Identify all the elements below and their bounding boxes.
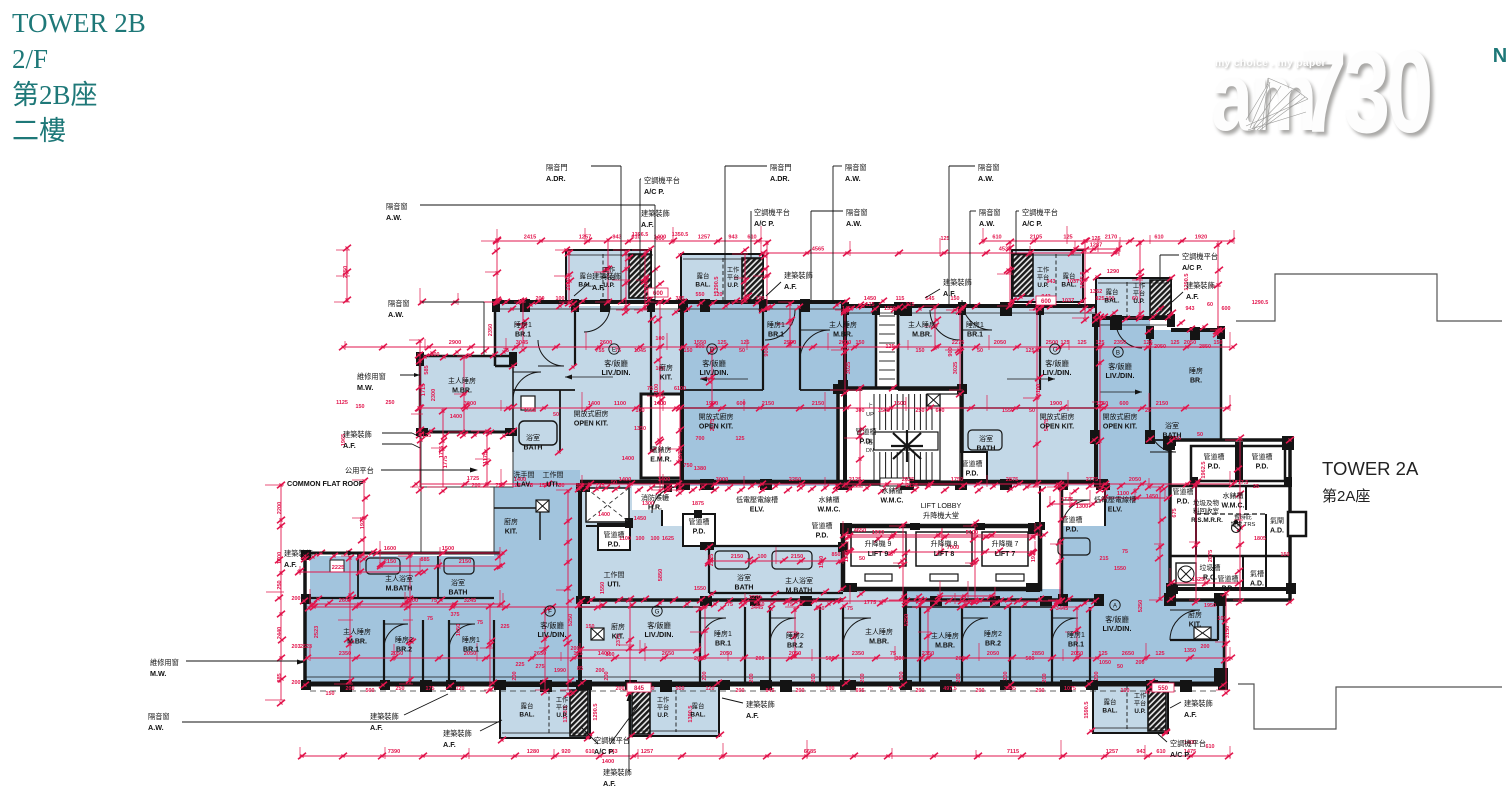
svg-text:二樓: 二樓 (12, 116, 66, 146)
svg-text:500: 500 (366, 688, 375, 694)
svg-text:廚房: 廚房 (1188, 610, 1202, 619)
svg-text:215: 215 (1100, 556, 1109, 562)
svg-text:6100: 6100 (1036, 384, 1042, 396)
svg-text:平台: 平台 (727, 274, 739, 282)
svg-text:客/飯廳: 客/飯廳 (540, 621, 564, 630)
svg-text:1550: 1550 (884, 306, 896, 312)
svg-text:920: 920 (561, 749, 570, 755)
svg-text:隔音窗: 隔音窗 (148, 712, 170, 721)
svg-text:610: 610 (1156, 749, 1165, 755)
svg-text:200: 200 (702, 671, 708, 680)
svg-text:睡房1: 睡房1 (462, 635, 480, 644)
svg-text:200: 200 (1042, 673, 1048, 682)
svg-text:200: 200 (346, 686, 355, 692)
svg-text:2075: 2075 (1208, 550, 1214, 562)
svg-text:管道槽: 管道槽 (604, 530, 625, 539)
svg-text:工作間: 工作間 (543, 470, 564, 479)
svg-text:空調機平台: 空調機平台 (1170, 739, 1206, 748)
svg-text:U.P.: U.P. (657, 712, 669, 719)
svg-text:2250: 2250 (789, 477, 801, 483)
svg-text:1100: 1100 (406, 598, 418, 604)
svg-text:R.S.M.R.R.: R.S.M.R.R. (1191, 517, 1223, 524)
svg-text:建築裝飾: 建築裝飾 (592, 272, 621, 281)
svg-text:建築裝飾: 建築裝飾 (370, 712, 399, 721)
svg-text:75: 75 (647, 386, 653, 392)
svg-text:管道槽: 管道槽 (962, 459, 983, 468)
svg-text:100: 100 (826, 686, 835, 692)
svg-text:W.M.C.: W.M.C. (1222, 503, 1245, 510)
svg-text:600: 600 (1041, 299, 1052, 305)
svg-text:U.P.: U.P. (1037, 282, 1049, 289)
svg-text:610: 610 (1206, 744, 1215, 750)
svg-text:隔音窗: 隔音窗 (979, 208, 1001, 217)
svg-text:3445: 3445 (1056, 606, 1068, 612)
svg-text:1550: 1550 (1114, 566, 1126, 572)
svg-text:U.P.: U.P. (727, 282, 739, 289)
svg-text:主人睡房: 主人睡房 (908, 320, 936, 329)
svg-text:客/飯廳: 客/飯廳 (1108, 362, 1132, 371)
svg-text:M.W.: M.W. (357, 383, 373, 392)
svg-text:B: B (1116, 350, 1120, 357)
svg-text:3125: 3125 (419, 433, 431, 439)
svg-text:100: 100 (655, 336, 664, 342)
svg-text:客/飯廳: 客/飯廳 (604, 359, 628, 368)
svg-text:1450: 1450 (842, 306, 854, 312)
svg-text:725: 725 (596, 483, 605, 489)
svg-text:BR.1: BR.1 (967, 332, 983, 339)
svg-text:2150: 2150 (762, 401, 774, 407)
svg-text:2900: 2900 (449, 340, 461, 346)
svg-text:3445: 3445 (1004, 686, 1016, 692)
svg-text:7115: 7115 (1007, 749, 1019, 755)
svg-text:675: 675 (1172, 508, 1178, 517)
svg-text:600: 600 (736, 401, 745, 407)
svg-text:2150: 2150 (459, 559, 471, 565)
svg-text:250: 250 (277, 580, 283, 589)
svg-text:960: 960 (816, 606, 825, 612)
svg-text:暫時庇: 暫時庇 (1234, 513, 1252, 521)
svg-text:1050: 1050 (1099, 660, 1111, 666)
svg-text:610: 610 (747, 235, 756, 241)
svg-text:BATH: BATH (1163, 433, 1182, 440)
svg-text:1257: 1257 (579, 235, 591, 241)
svg-text:50: 50 (1117, 664, 1123, 670)
svg-text:維修用窗: 維修用窗 (150, 658, 179, 667)
svg-text:175: 175 (426, 686, 435, 692)
svg-text:LIV./DIN.: LIV./DIN. (602, 368, 631, 377)
svg-text:5850: 5850 (658, 569, 664, 581)
svg-text:公用平台: 公用平台 (345, 466, 374, 475)
svg-text:125: 125 (886, 344, 895, 350)
svg-text:睡房1: 睡房1 (514, 320, 532, 329)
svg-text:1605.5: 1605.5 (1080, 271, 1086, 288)
svg-text:平台: 平台 (657, 704, 669, 712)
svg-text:M.BR.: M.BR. (833, 332, 853, 339)
svg-text:943: 943 (1136, 749, 1145, 755)
svg-text:KIT.: KIT. (505, 529, 518, 536)
svg-text:BAL.: BAL. (1061, 282, 1076, 289)
svg-text:550: 550 (676, 686, 685, 692)
svg-text:3025: 3025 (846, 362, 852, 374)
svg-text:1775: 1775 (1061, 497, 1073, 503)
svg-text:1450: 1450 (634, 516, 646, 522)
svg-text:UTI.: UTI. (607, 582, 620, 589)
svg-text:BR.2: BR.2 (787, 643, 803, 650)
svg-text:露台: 露台 (1106, 287, 1119, 296)
svg-text:85: 85 (577, 666, 583, 672)
svg-text:120: 120 (714, 292, 723, 298)
svg-text:A.D.: A.D. (1270, 528, 1284, 535)
svg-text:500: 500 (826, 656, 835, 662)
svg-text:客/飯廳: 客/飯廳 (647, 621, 671, 630)
svg-text:P.D.: P.D. (608, 542, 621, 549)
svg-text:1350: 1350 (634, 426, 646, 432)
svg-text:1962.5: 1962.5 (1201, 461, 1207, 478)
svg-text:900: 900 (764, 347, 770, 356)
svg-text:睡房1: 睡房1 (966, 320, 984, 329)
svg-text:建築裝飾: 建築裝飾 (343, 430, 372, 439)
svg-text:3000: 3000 (464, 401, 476, 407)
svg-text:浴室: 浴室 (526, 433, 540, 442)
svg-text:850: 850 (832, 552, 841, 558)
svg-text:2350: 2350 (852, 651, 864, 657)
svg-text:750: 750 (496, 483, 505, 489)
svg-text:1750: 1750 (1096, 401, 1108, 407)
svg-text:平台: 平台 (1134, 700, 1146, 708)
svg-text:A.W.: A.W. (845, 174, 861, 183)
svg-text:5250: 5250 (568, 614, 574, 626)
svg-text:120: 120 (456, 686, 465, 692)
svg-text:OPEN KIT.: OPEN KIT. (1103, 424, 1137, 431)
svg-text:1075: 1075 (1064, 686, 1076, 692)
svg-text:2775: 2775 (1086, 477, 1098, 483)
svg-text:50: 50 (1029, 408, 1035, 414)
svg-text:氣槽: 氣槽 (1250, 569, 1264, 578)
svg-text:R.C.: R.C. (1203, 575, 1217, 582)
svg-text:1400: 1400 (588, 401, 600, 407)
svg-text:LIV./DIN.: LIV./DIN. (538, 630, 567, 639)
svg-text:BR.: BR. (1190, 378, 1202, 385)
svg-text:2050: 2050 (720, 651, 732, 657)
svg-text:A/C P.: A/C P. (1182, 263, 1202, 272)
svg-text:洗手間: 洗手間 (514, 470, 535, 479)
svg-text:1350.5: 1350.5 (672, 232, 689, 238)
svg-text:5250: 5250 (904, 614, 910, 626)
svg-text:建築裝飾: 建築裝飾 (1186, 281, 1215, 290)
svg-text:M.BR.: M.BR. (869, 639, 889, 646)
svg-text:125: 125 (1026, 348, 1035, 354)
svg-text:M.BATH: M.BATH (386, 586, 413, 593)
svg-text:E: E (612, 347, 616, 354)
svg-text:1920: 1920 (1195, 235, 1207, 241)
svg-text:水錶櫃: 水錶櫃 (882, 486, 903, 495)
svg-text:3270: 3270 (749, 595, 761, 601)
svg-text:125: 125 (1171, 340, 1180, 346)
svg-text:100: 100 (556, 296, 565, 302)
svg-text:KIT.: KIT. (660, 375, 673, 382)
svg-text:1715: 1715 (421, 384, 427, 396)
svg-text:200: 200 (916, 688, 925, 694)
svg-text:3245: 3245 (464, 598, 476, 604)
svg-text:200: 200 (292, 596, 301, 602)
svg-text:露台: 露台 (692, 701, 705, 710)
svg-text:250: 250 (916, 408, 925, 414)
svg-text:工作: 工作 (1134, 692, 1146, 700)
svg-text:100: 100 (576, 483, 585, 489)
svg-text:P.D.: P.D. (693, 529, 706, 536)
svg-text:A.F.: A.F. (284, 560, 297, 569)
svg-text:825: 825 (1095, 296, 1104, 302)
svg-text:1290.5: 1290.5 (593, 703, 599, 720)
svg-text:275: 275 (536, 664, 545, 670)
svg-text:2150: 2150 (384, 559, 396, 565)
svg-text:885: 885 (277, 673, 283, 682)
svg-text:497.5: 497.5 (943, 686, 957, 692)
svg-text:1257: 1257 (641, 749, 653, 755)
svg-text:125: 125 (1061, 340, 1070, 346)
svg-text:1805: 1805 (1254, 536, 1266, 542)
svg-text:2150: 2150 (731, 554, 743, 560)
svg-text:U.P.: U.P. (556, 712, 568, 719)
svg-text:廚房: 廚房 (659, 363, 673, 372)
svg-text:125: 125 (906, 302, 915, 308)
svg-text:1400: 1400 (619, 477, 631, 483)
svg-text:ELV.: ELV. (1108, 507, 1122, 514)
svg-text:300: 300 (896, 656, 905, 662)
svg-text:LIFT LOBBY: LIFT LOBBY (921, 501, 962, 510)
svg-text:150: 150 (586, 624, 595, 630)
svg-text:1600: 1600 (384, 546, 396, 552)
svg-text:3150: 3150 (1225, 626, 1231, 638)
svg-text:200: 200 (1136, 660, 1145, 666)
svg-text:P.D.: P.D. (1222, 586, 1235, 593)
svg-text:150: 150 (356, 404, 365, 410)
svg-text:1700: 1700 (277, 552, 283, 564)
svg-text:2125: 2125 (906, 483, 918, 489)
svg-text:工作: 工作 (727, 266, 739, 274)
svg-text:開放式廚房: 開放式廚房 (699, 412, 734, 421)
svg-text:P.D.: P.D. (1177, 499, 1190, 506)
svg-text:睡房2: 睡房2 (395, 635, 413, 644)
svg-text:LIFT 9: LIFT 9 (868, 551, 889, 558)
svg-text:1925: 1925 (360, 517, 366, 529)
svg-text:M.BR.: M.BR. (935, 643, 955, 650)
svg-text:主人浴室: 主人浴室 (385, 574, 413, 583)
svg-text:A.F.: A.F. (370, 723, 383, 732)
svg-text:2050: 2050 (987, 651, 999, 657)
svg-text:1550: 1550 (1002, 408, 1014, 414)
svg-text:200: 200 (536, 296, 545, 302)
svg-text:2225: 2225 (332, 565, 344, 571)
svg-text:G: G (655, 609, 660, 616)
svg-text:BR.2: BR.2 (396, 647, 412, 654)
svg-text:A.F.: A.F. (1184, 710, 1197, 719)
svg-text:150: 150 (1214, 340, 1223, 346)
svg-text:客/飯廳: 客/飯廳 (702, 359, 726, 368)
svg-text:1550: 1550 (694, 586, 706, 592)
svg-text:3000: 3000 (716, 477, 728, 483)
svg-text:2440: 2440 (277, 627, 283, 639)
svg-text:管道槽: 管道槽 (812, 521, 833, 530)
svg-text:建築裝飾: 建築裝飾 (746, 700, 775, 709)
svg-text:1037: 1037 (1062, 298, 1074, 304)
svg-text:200: 200 (956, 656, 965, 662)
svg-text:UTI.: UTI. (546, 482, 559, 489)
svg-text:943: 943 (1186, 306, 1195, 312)
svg-text:200: 200 (571, 646, 580, 652)
svg-text:P.D.: P.D. (860, 439, 873, 446)
svg-text:1625: 1625 (662, 536, 674, 542)
svg-text:睡房1: 睡房1 (767, 320, 785, 329)
svg-text:250: 250 (386, 400, 395, 406)
svg-text:1290.5: 1290.5 (1252, 300, 1269, 306)
svg-text:1125: 1125 (336, 400, 348, 406)
svg-text:75: 75 (431, 598, 437, 604)
svg-text:2650: 2650 (662, 651, 674, 657)
svg-text:2650: 2650 (1122, 651, 1134, 657)
svg-text:6100: 6100 (654, 384, 660, 396)
svg-text:A.D.: A.D. (1250, 581, 1264, 588)
svg-text:115: 115 (896, 296, 905, 302)
svg-text:A.F.: A.F. (943, 289, 956, 298)
svg-text:垃圾及物: 垃圾及物 (1193, 498, 1220, 507)
svg-text:200: 200 (736, 688, 745, 694)
svg-text:露台: 露台 (1104, 697, 1117, 706)
svg-text:浴室: 浴室 (737, 573, 751, 582)
svg-text:A.F.: A.F. (443, 740, 456, 749)
svg-text:75: 75 (1122, 549, 1128, 555)
svg-text:低電壓電線槽: 低電壓電線槽 (1094, 495, 1136, 504)
svg-text:750: 750 (683, 463, 692, 469)
svg-text:125: 125 (736, 436, 745, 442)
svg-text:氣閘: 氣閘 (1270, 516, 1284, 525)
svg-text:200: 200 (596, 668, 605, 674)
svg-text:4975: 4975 (964, 600, 976, 606)
svg-text:LIV./DIN.: LIV./DIN. (700, 368, 729, 377)
svg-text:125: 125 (1143, 340, 1152, 346)
svg-text:2600: 2600 (339, 598, 351, 604)
svg-text:F: F (548, 609, 552, 616)
svg-text:空調機平台: 空調機平台 (1182, 252, 1218, 261)
svg-text:1280: 1280 (527, 749, 539, 755)
svg-text:2105: 2105 (1030, 235, 1042, 241)
svg-text:W.M.C.: W.M.C. (881, 498, 904, 505)
svg-text:2300: 2300 (431, 389, 437, 401)
svg-text:隔音窗: 隔音窗 (386, 202, 408, 211)
svg-text:1400: 1400 (658, 477, 670, 483)
svg-text:1100: 1100 (614, 401, 626, 407)
svg-text:BR.1: BR.1 (463, 647, 479, 654)
svg-text:BR.1: BR.1 (715, 641, 731, 648)
svg-text:管道槽: 管道槽 (1252, 452, 1273, 461)
svg-text:水錶櫃: 水錶櫃 (819, 495, 840, 504)
svg-text:LAV.: LAV. (517, 482, 532, 489)
svg-text:1900: 1900 (872, 530, 884, 536)
svg-text:695: 695 (856, 688, 865, 694)
svg-text:露台: 露台 (580, 271, 593, 280)
svg-text:2975: 2975 (678, 449, 684, 461)
svg-text:上: 上 (867, 402, 873, 410)
svg-text:A.F.: A.F. (746, 711, 759, 720)
svg-text:150: 150 (916, 348, 925, 354)
svg-text:LIV./DIN.: LIV./DIN. (645, 630, 674, 639)
svg-text:125: 125 (1077, 340, 1086, 346)
svg-text:4535: 4535 (999, 247, 1011, 253)
svg-text:A/C P.: A/C P. (1170, 750, 1190, 759)
svg-text:120: 120 (706, 686, 715, 692)
svg-text:75: 75 (847, 606, 853, 612)
svg-text:A.F.: A.F. (641, 220, 654, 229)
svg-text:TOWER 2A: TOWER 2A (1322, 458, 1419, 479)
svg-text:水錶櫃: 水錶櫃 (1223, 491, 1244, 500)
svg-text:943: 943 (612, 235, 621, 241)
svg-text:BATH: BATH (735, 585, 754, 592)
svg-text:客/飯廳: 客/飯廳 (1045, 359, 1069, 368)
svg-text:2125: 2125 (849, 477, 861, 483)
svg-text:1550: 1550 (819, 556, 825, 568)
svg-text:100: 100 (757, 554, 766, 560)
svg-text:1925: 1925 (1031, 550, 1037, 562)
svg-text:225: 225 (516, 662, 525, 668)
svg-text:工作: 工作 (1133, 282, 1145, 290)
svg-text:W.M.C.: W.M.C. (818, 507, 841, 514)
svg-text:100: 100 (606, 652, 615, 658)
svg-text:工作間: 工作間 (604, 570, 625, 579)
svg-text:50: 50 (859, 556, 865, 562)
svg-text:建築裝飾: 建築裝飾 (603, 768, 632, 777)
svg-text:升降機 8: 升降機 8 (931, 539, 958, 548)
svg-text:150: 150 (326, 691, 335, 697)
svg-text:1725: 1725 (467, 476, 479, 482)
svg-text:125: 125 (1155, 651, 1164, 657)
svg-text:203: 203 (292, 644, 301, 650)
svg-text:150: 150 (684, 348, 693, 354)
svg-text:BAL.: BAL. (1104, 298, 1119, 305)
svg-text:2523: 2523 (300, 644, 312, 650)
svg-text:睡房: 睡房 (1189, 366, 1203, 375)
svg-text:睡房2: 睡房2 (984, 629, 1002, 638)
svg-text:A.F.: A.F. (603, 779, 616, 788)
svg-text:1750: 1750 (951, 477, 963, 483)
svg-text:600: 600 (1119, 401, 1128, 407)
svg-text:OPEN KIT.: OPEN KIT. (574, 421, 608, 428)
svg-text:平台: 平台 (556, 704, 568, 712)
svg-text:2050: 2050 (994, 340, 1006, 346)
svg-text:隔音窗: 隔音窗 (388, 299, 410, 308)
svg-text:LIFT 8: LIFT 8 (934, 551, 955, 558)
svg-text:550: 550 (1158, 686, 1169, 692)
svg-text:U.P.: U.P. (1133, 298, 1145, 305)
svg-text:管道槽: 管道槽 (1204, 452, 1225, 461)
svg-text:平台: 平台 (1133, 290, 1145, 298)
svg-text:主人睡房: 主人睡房 (829, 320, 857, 329)
svg-text:600: 600 (656, 236, 665, 242)
svg-text:浴室: 浴室 (979, 434, 993, 443)
svg-text:開放式廚房: 開放式廚房 (574, 409, 609, 418)
svg-text:1400: 1400 (654, 401, 666, 407)
svg-text:空調機平台: 空調機平台 (594, 736, 630, 745)
svg-text:1875: 1875 (692, 501, 704, 507)
svg-text:工作: 工作 (556, 696, 568, 704)
svg-text:125: 125 (1098, 651, 1107, 657)
svg-text:2150: 2150 (791, 554, 803, 560)
svg-text:1500: 1500 (894, 401, 906, 407)
svg-text:1500: 1500 (442, 546, 454, 552)
svg-text:1257: 1257 (1106, 749, 1118, 755)
svg-text:睡房2: 睡房2 (786, 631, 804, 640)
svg-text:1500: 1500 (878, 408, 890, 414)
svg-text:空調機平台: 空調機平台 (754, 208, 790, 217)
